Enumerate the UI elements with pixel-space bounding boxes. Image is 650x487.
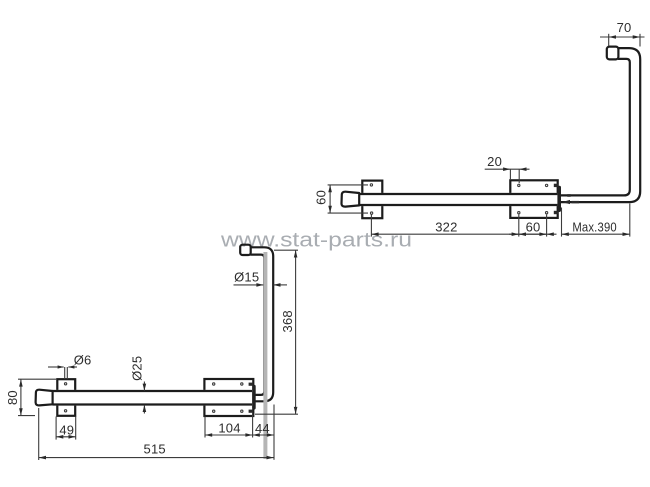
svg-text:44: 44: [255, 421, 270, 436]
svg-text:www.stat-parts.ru: www.stat-parts.ru: [220, 229, 412, 252]
svg-text:60: 60: [313, 190, 328, 205]
svg-text:70: 70: [617, 20, 632, 35]
svg-text:Ø15: Ø15: [234, 270, 259, 285]
svg-text:515: 515: [144, 441, 166, 456]
svg-text:368: 368: [280, 310, 295, 332]
svg-text:322: 322: [435, 220, 457, 235]
svg-text:80: 80: [5, 390, 20, 405]
svg-text:Ø6: Ø6: [74, 352, 92, 367]
svg-text:Max.390: Max.390: [572, 220, 617, 235]
svg-text:Ø25: Ø25: [129, 356, 144, 381]
svg-text:104: 104: [218, 420, 240, 435]
svg-text:60: 60: [526, 220, 541, 235]
svg-text:49: 49: [59, 422, 74, 437]
svg-text:20: 20: [487, 154, 502, 169]
